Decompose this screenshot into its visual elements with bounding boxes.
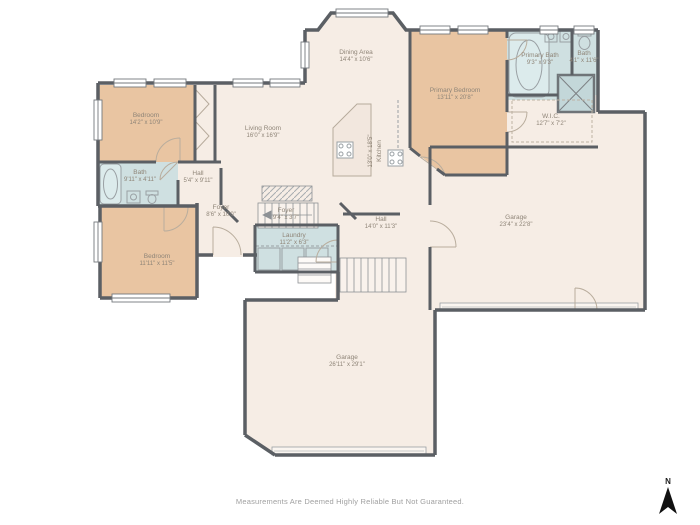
- floor-plan-page: Dining Area 14'4" x 10'6" Primary Bedroo…: [0, 0, 700, 525]
- north-arrow-icon: [658, 487, 678, 515]
- floor-plan-drawing: [0, 0, 700, 525]
- compass: N: [652, 477, 684, 515]
- compass-n-label: N: [652, 477, 684, 486]
- disclaimer-text: Measurements Are Deemed Highly Reliable …: [236, 497, 464, 506]
